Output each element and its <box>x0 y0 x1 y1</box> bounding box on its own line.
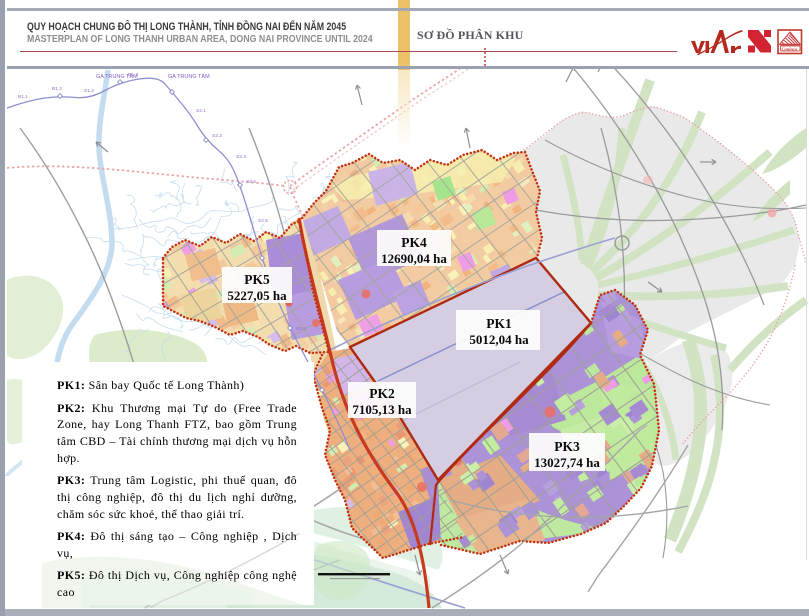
svg-text:5227,05 ha: 5227,05 ha <box>227 288 287 303</box>
svg-text:PK5: PK5 <box>244 272 270 287</box>
svg-text:12690,04 ha: 12690,04 ha <box>381 251 447 266</box>
svg-text:7105,13 ha: 7105,13 ha <box>352 402 412 417</box>
svg-text:PK1: PK1 <box>486 316 512 331</box>
svg-text:S2.1: S2.1 <box>196 108 206 114</box>
svg-text:S2.6: S2.6 <box>296 326 306 332</box>
svg-text:S2.2: S2.2 <box>212 133 222 139</box>
svg-text:B1.1: B1.1 <box>18 94 28 100</box>
svg-text:PK3: PK3 <box>554 439 580 454</box>
svg-text:S2.5: S2.5 <box>258 218 268 224</box>
svg-text:PK2: PK2 <box>369 386 395 401</box>
svg-text:13027,74 ha: 13027,74 ha <box>534 455 600 470</box>
svg-text:5012,04 ha: 5012,04 ha <box>469 332 529 347</box>
svg-text:GA TRUNG TÂM: GA TRUNG TÂM <box>168 73 210 80</box>
svg-text:S2.4: S2.4 <box>246 179 256 185</box>
svg-text:Coninco: Coninco <box>782 46 799 51</box>
svg-text:S2.3: S2.3 <box>236 154 246 160</box>
svg-text:PK4: PK4 <box>401 235 427 250</box>
svg-text:S1.2: S1.2 <box>84 88 94 94</box>
svg-text:B1.3: B1.3 <box>128 72 138 78</box>
svg-text:B1.2: B1.2 <box>52 86 62 92</box>
